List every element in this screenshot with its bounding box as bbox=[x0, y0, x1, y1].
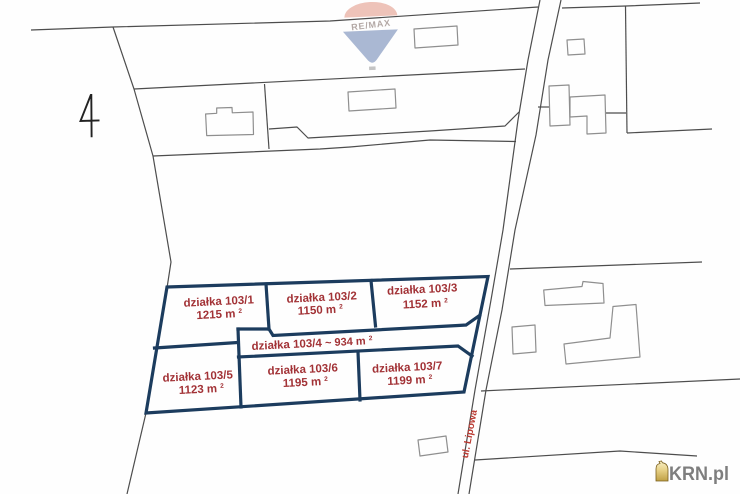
svg-text:1215 m 2: 1215 m 2 bbox=[196, 308, 243, 322]
svg-text:1199 m 2: 1199 m 2 bbox=[387, 374, 433, 388]
svg-text:KRN.pl: KRN.pl bbox=[669, 463, 729, 485]
svg-text:1150 m 2: 1150 m 2 bbox=[298, 303, 344, 317]
svg-text:1152 m 2: 1152 m 2 bbox=[403, 297, 449, 311]
svg-text:1123 m 2: 1123 m 2 bbox=[179, 383, 225, 397]
svg-text:1195 m 2: 1195 m 2 bbox=[283, 376, 329, 390]
